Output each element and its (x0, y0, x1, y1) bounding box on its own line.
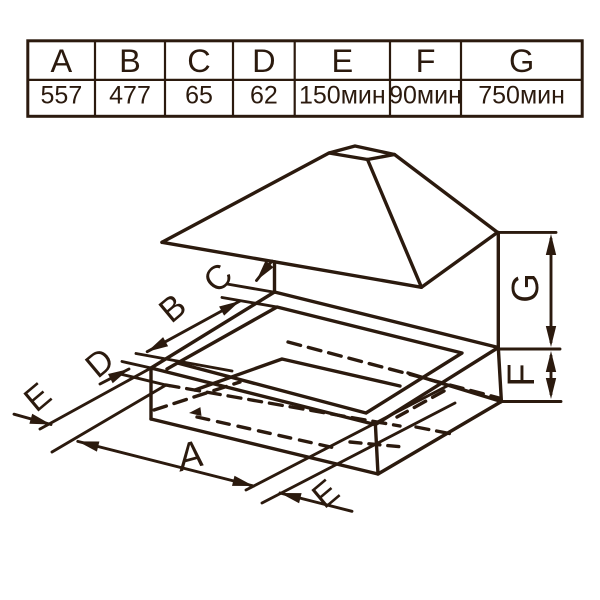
svg-text:C: C (196, 256, 240, 300)
svg-text:65: 65 (185, 82, 213, 110)
svg-text:90мин: 90мин (389, 82, 462, 110)
svg-text:B: B (119, 43, 141, 79)
svg-text:A: A (171, 433, 208, 481)
svg-text:G: G (505, 273, 547, 303)
svg-text:557: 557 (41, 82, 83, 110)
svg-text:A: A (51, 43, 73, 79)
svg-text:C: C (187, 43, 210, 79)
svg-text:750мин: 750мин (478, 82, 565, 110)
svg-text:150мин: 150мин (299, 82, 386, 110)
svg-text:F: F (501, 363, 543, 386)
svg-text:B: B (152, 287, 194, 331)
svg-text:E: E (17, 376, 59, 420)
svg-text:E: E (332, 43, 354, 79)
svg-text:D: D (252, 43, 275, 79)
svg-text:477: 477 (109, 82, 151, 110)
svg-text:62: 62 (250, 82, 278, 110)
svg-text:F: F (416, 43, 436, 79)
svg-text:G: G (509, 43, 534, 79)
